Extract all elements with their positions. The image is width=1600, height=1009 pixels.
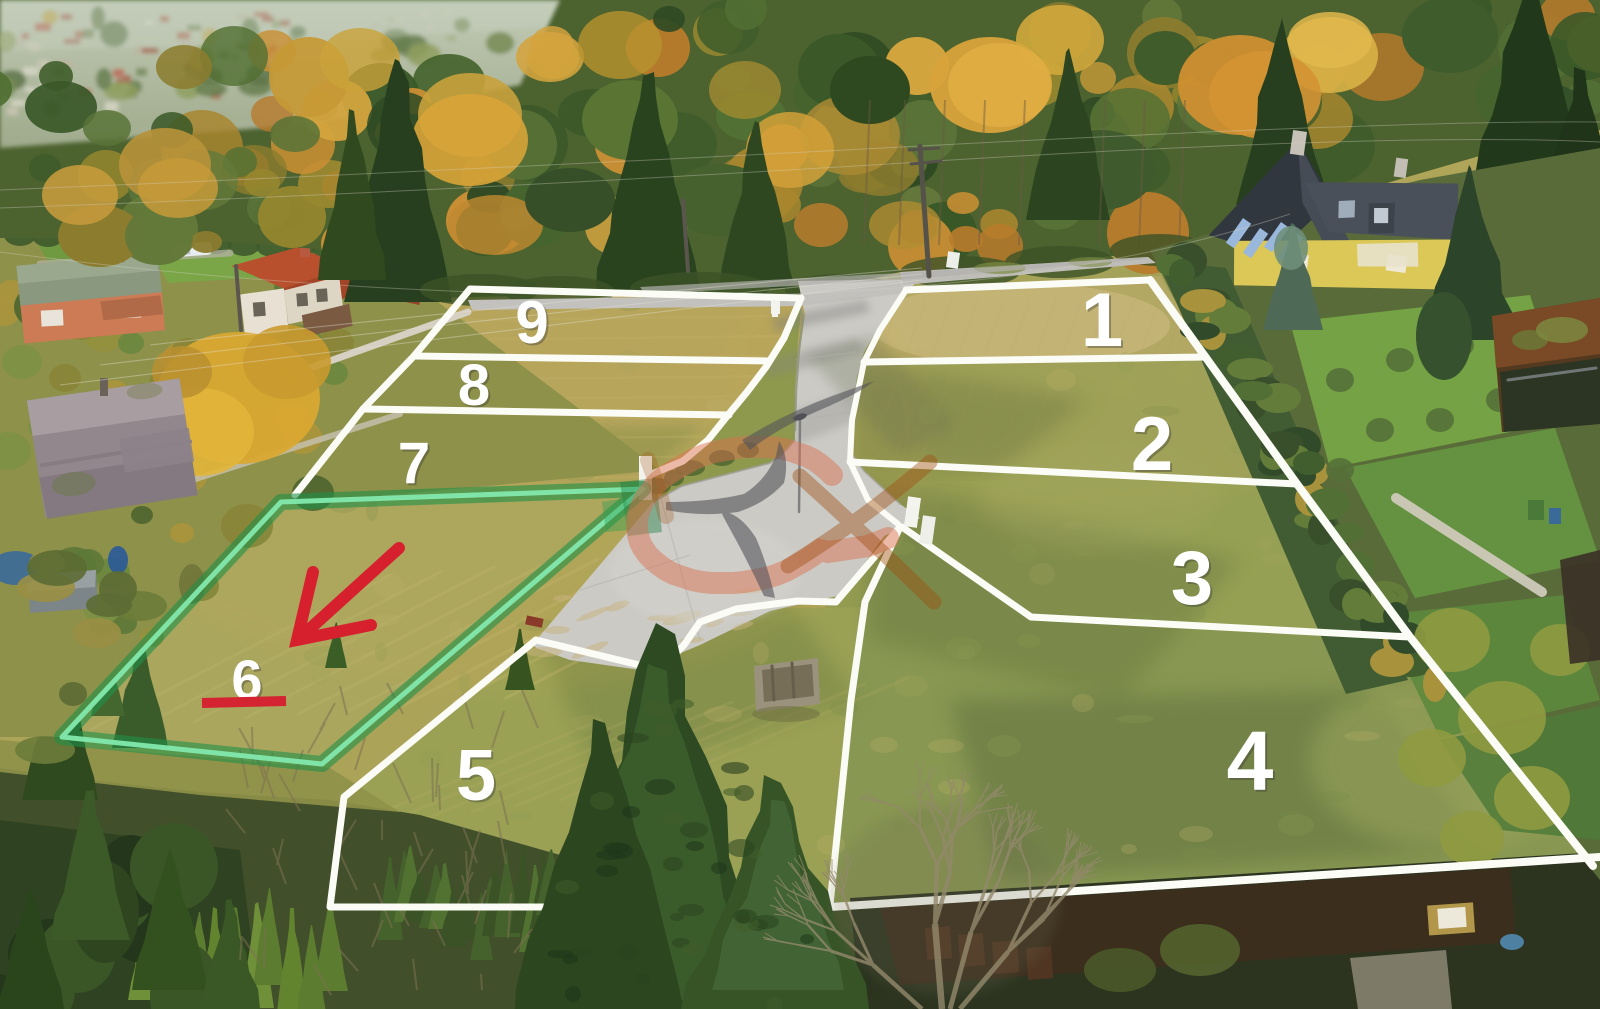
svg-text:3: 3 <box>1171 536 1213 621</box>
svg-text:8: 8 <box>458 353 490 418</box>
svg-text:5: 5 <box>456 736 496 816</box>
svg-text:2: 2 <box>1131 402 1173 487</box>
svg-text:1: 1 <box>1081 278 1123 363</box>
svg-text:4: 4 <box>1227 714 1274 808</box>
svg-text:9: 9 <box>515 289 548 356</box>
svg-text:7: 7 <box>398 431 430 496</box>
